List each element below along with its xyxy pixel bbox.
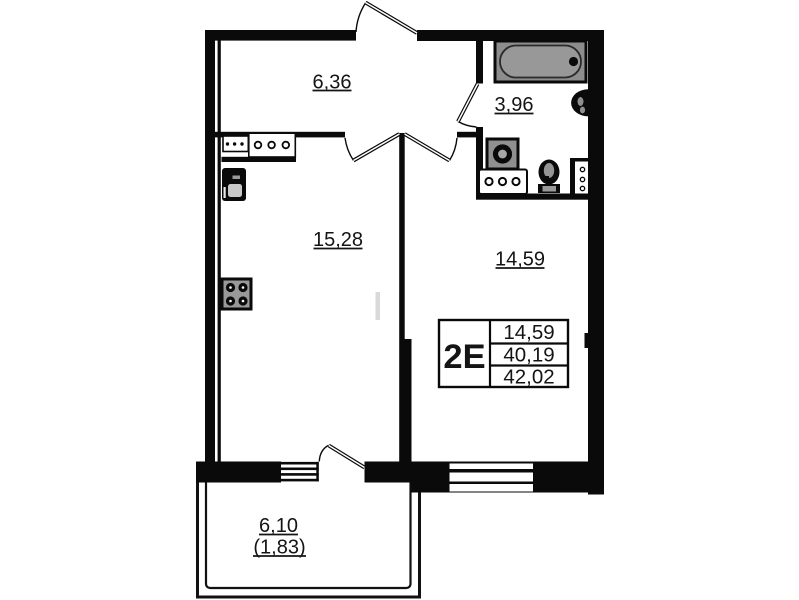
svg-text:42,02: 42,02 xyxy=(503,366,554,389)
svg-text:40,19: 40,19 xyxy=(503,344,554,367)
svg-text:2E: 2E xyxy=(443,338,485,376)
svg-text:14,59: 14,59 xyxy=(503,321,554,344)
